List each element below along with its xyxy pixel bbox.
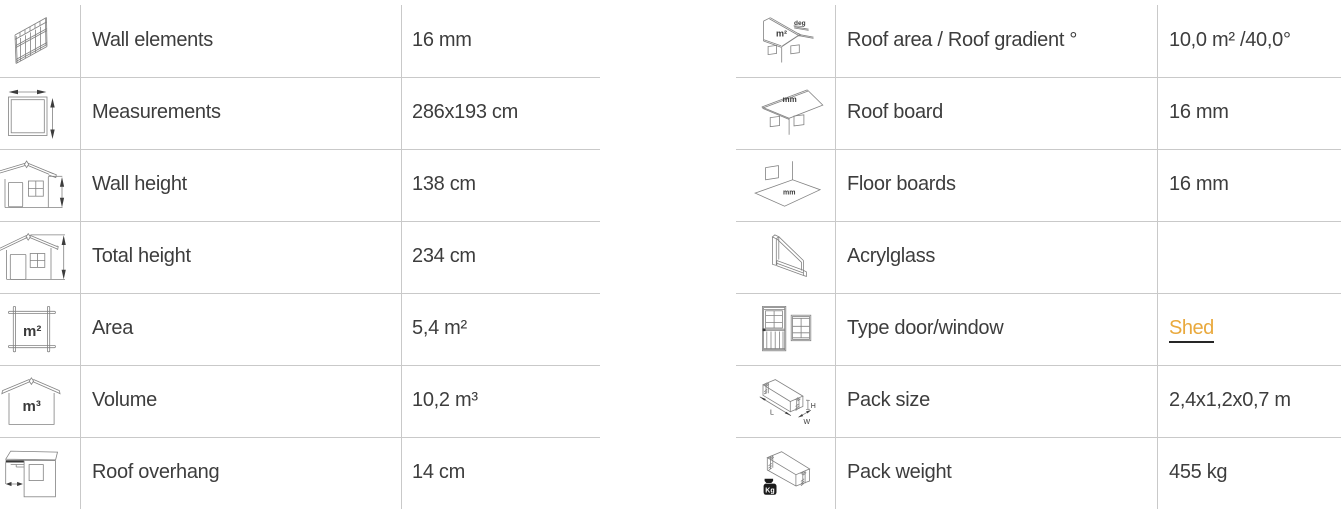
svg-text:H: H [811, 403, 816, 410]
svg-text:L: L [770, 410, 774, 417]
svg-text:m²: m² [776, 28, 787, 38]
svg-text:W: W [804, 419, 811, 426]
svg-text:Kg: Kg [765, 487, 774, 494]
svg-text:mm: mm [783, 190, 795, 197]
svg-text:m³: m³ [23, 398, 41, 415]
svg-text:mm: mm [783, 95, 797, 104]
svg-text:m²: m² [23, 323, 41, 340]
